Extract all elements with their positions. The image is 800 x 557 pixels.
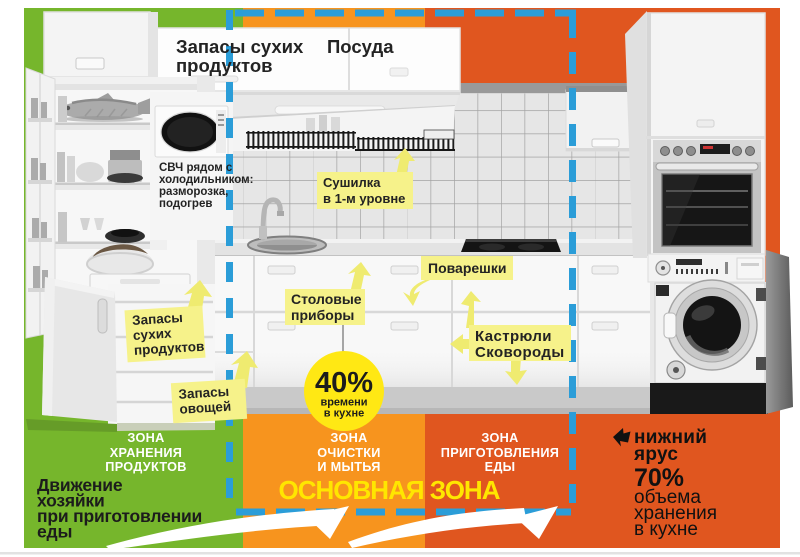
svg-text:ЕДЫ: ЕДЫ: [485, 460, 516, 474]
svg-text:СВЧ рядом с: СВЧ рядом с: [159, 162, 233, 174]
svg-text:Кастрюли: Кастрюли: [475, 328, 552, 345]
svg-text:разморозка,: разморозка,: [159, 186, 228, 198]
svg-text:овощей: овощей: [179, 399, 232, 417]
svg-text:в 1-м уровне: в 1-м уровне: [323, 191, 405, 206]
svg-text:ПРОДУКТОВ: ПРОДУКТОВ: [105, 460, 186, 474]
svg-text:ЗОНА: ЗОНА: [481, 431, 518, 445]
svg-text:ПРИГОТОВЛЕНИЯ: ПРИГОТОВЛЕНИЯ: [441, 446, 559, 460]
svg-text:Сковороды: Сковороды: [475, 344, 565, 361]
svg-text:Столовые: Столовые: [291, 291, 362, 307]
svg-text:подогрев: подогрев: [159, 198, 212, 210]
svg-text:ярус: ярус: [633, 444, 678, 465]
svg-text:в кухне: в кухне: [324, 408, 364, 420]
svg-text:в кухне: в кухне: [634, 519, 698, 540]
svg-text:ОЧИСТКИ: ОЧИСТКИ: [317, 446, 380, 460]
svg-text:Запасы: Запасы: [132, 310, 183, 328]
svg-text:ОСНОВНАЯ ЗОНА: ОСНОВНАЯ ЗОНА: [279, 475, 501, 505]
svg-text:ЗОНА: ЗОНА: [330, 431, 367, 445]
svg-text:ЗОНА: ЗОНА: [127, 431, 164, 445]
svg-text:ХРАНЕНИЯ: ХРАНЕНИЯ: [110, 446, 182, 460]
svg-text:продуктов: продуктов: [176, 55, 273, 76]
svg-text:Сушилка: Сушилка: [323, 175, 381, 190]
svg-text:Запасы сухих: Запасы сухих: [176, 36, 304, 57]
svg-text:еды: еды: [37, 522, 72, 542]
svg-text:Поварешки: Поварешки: [428, 260, 506, 276]
svg-text:И МЫТЬЯ: И МЫТЬЯ: [317, 460, 380, 474]
svg-text:40%: 40%: [315, 367, 373, 399]
svg-text:приборы: приборы: [291, 307, 354, 323]
svg-text:холодильником:: холодильником:: [159, 174, 253, 186]
svg-text:Посуда: Посуда: [327, 36, 394, 57]
